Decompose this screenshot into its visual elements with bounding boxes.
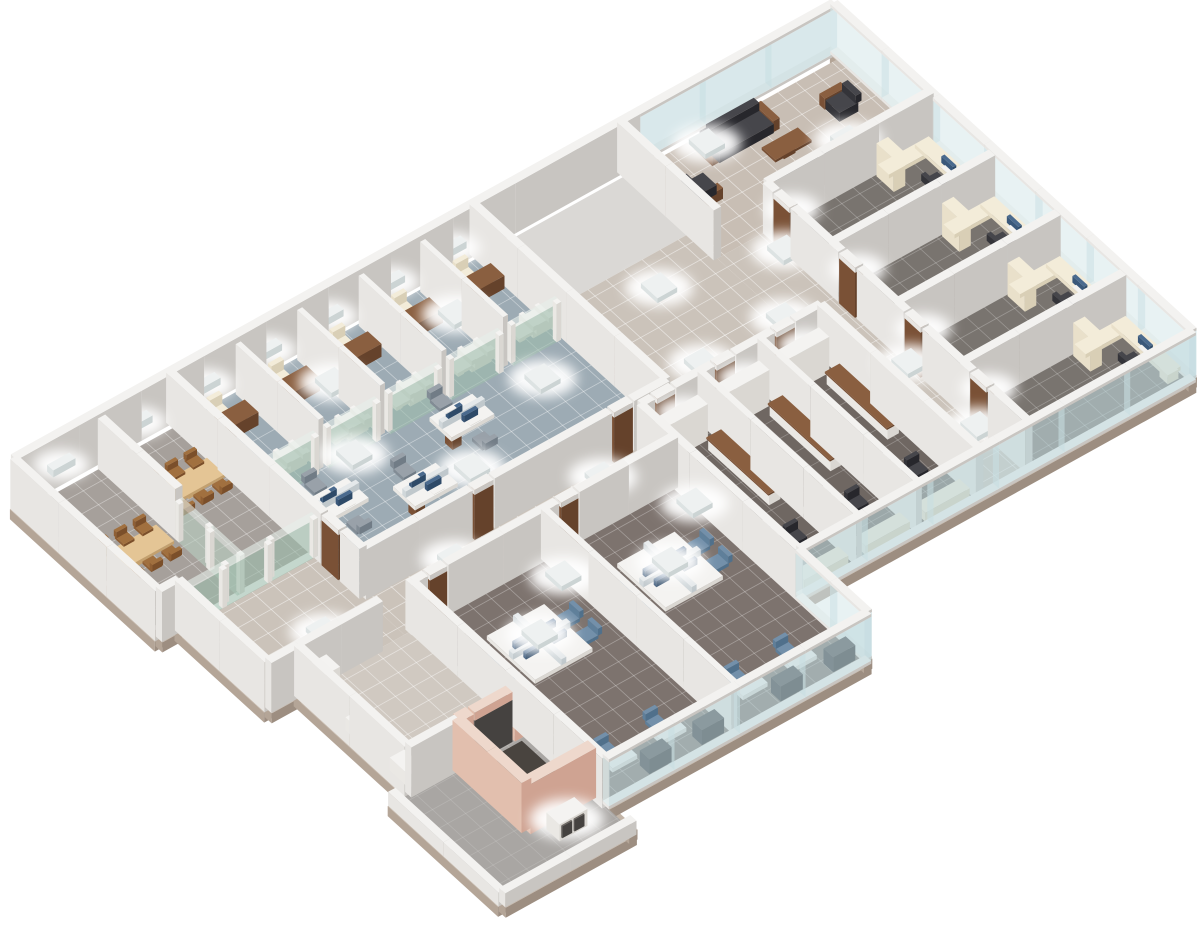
isometric-office-floorplan	[0, 0, 1200, 927]
light-south-1	[529, 557, 598, 595]
office-floorplan-figure	[0, 0, 1200, 927]
light-lounge-1	[673, 125, 742, 163]
light-open-3	[508, 360, 577, 398]
objects	[10, 0, 1196, 907]
light-open-1	[320, 436, 389, 474]
light-south-2	[660, 484, 729, 522]
ac-meeting-a	[34, 450, 90, 481]
light-hall	[625, 269, 694, 307]
